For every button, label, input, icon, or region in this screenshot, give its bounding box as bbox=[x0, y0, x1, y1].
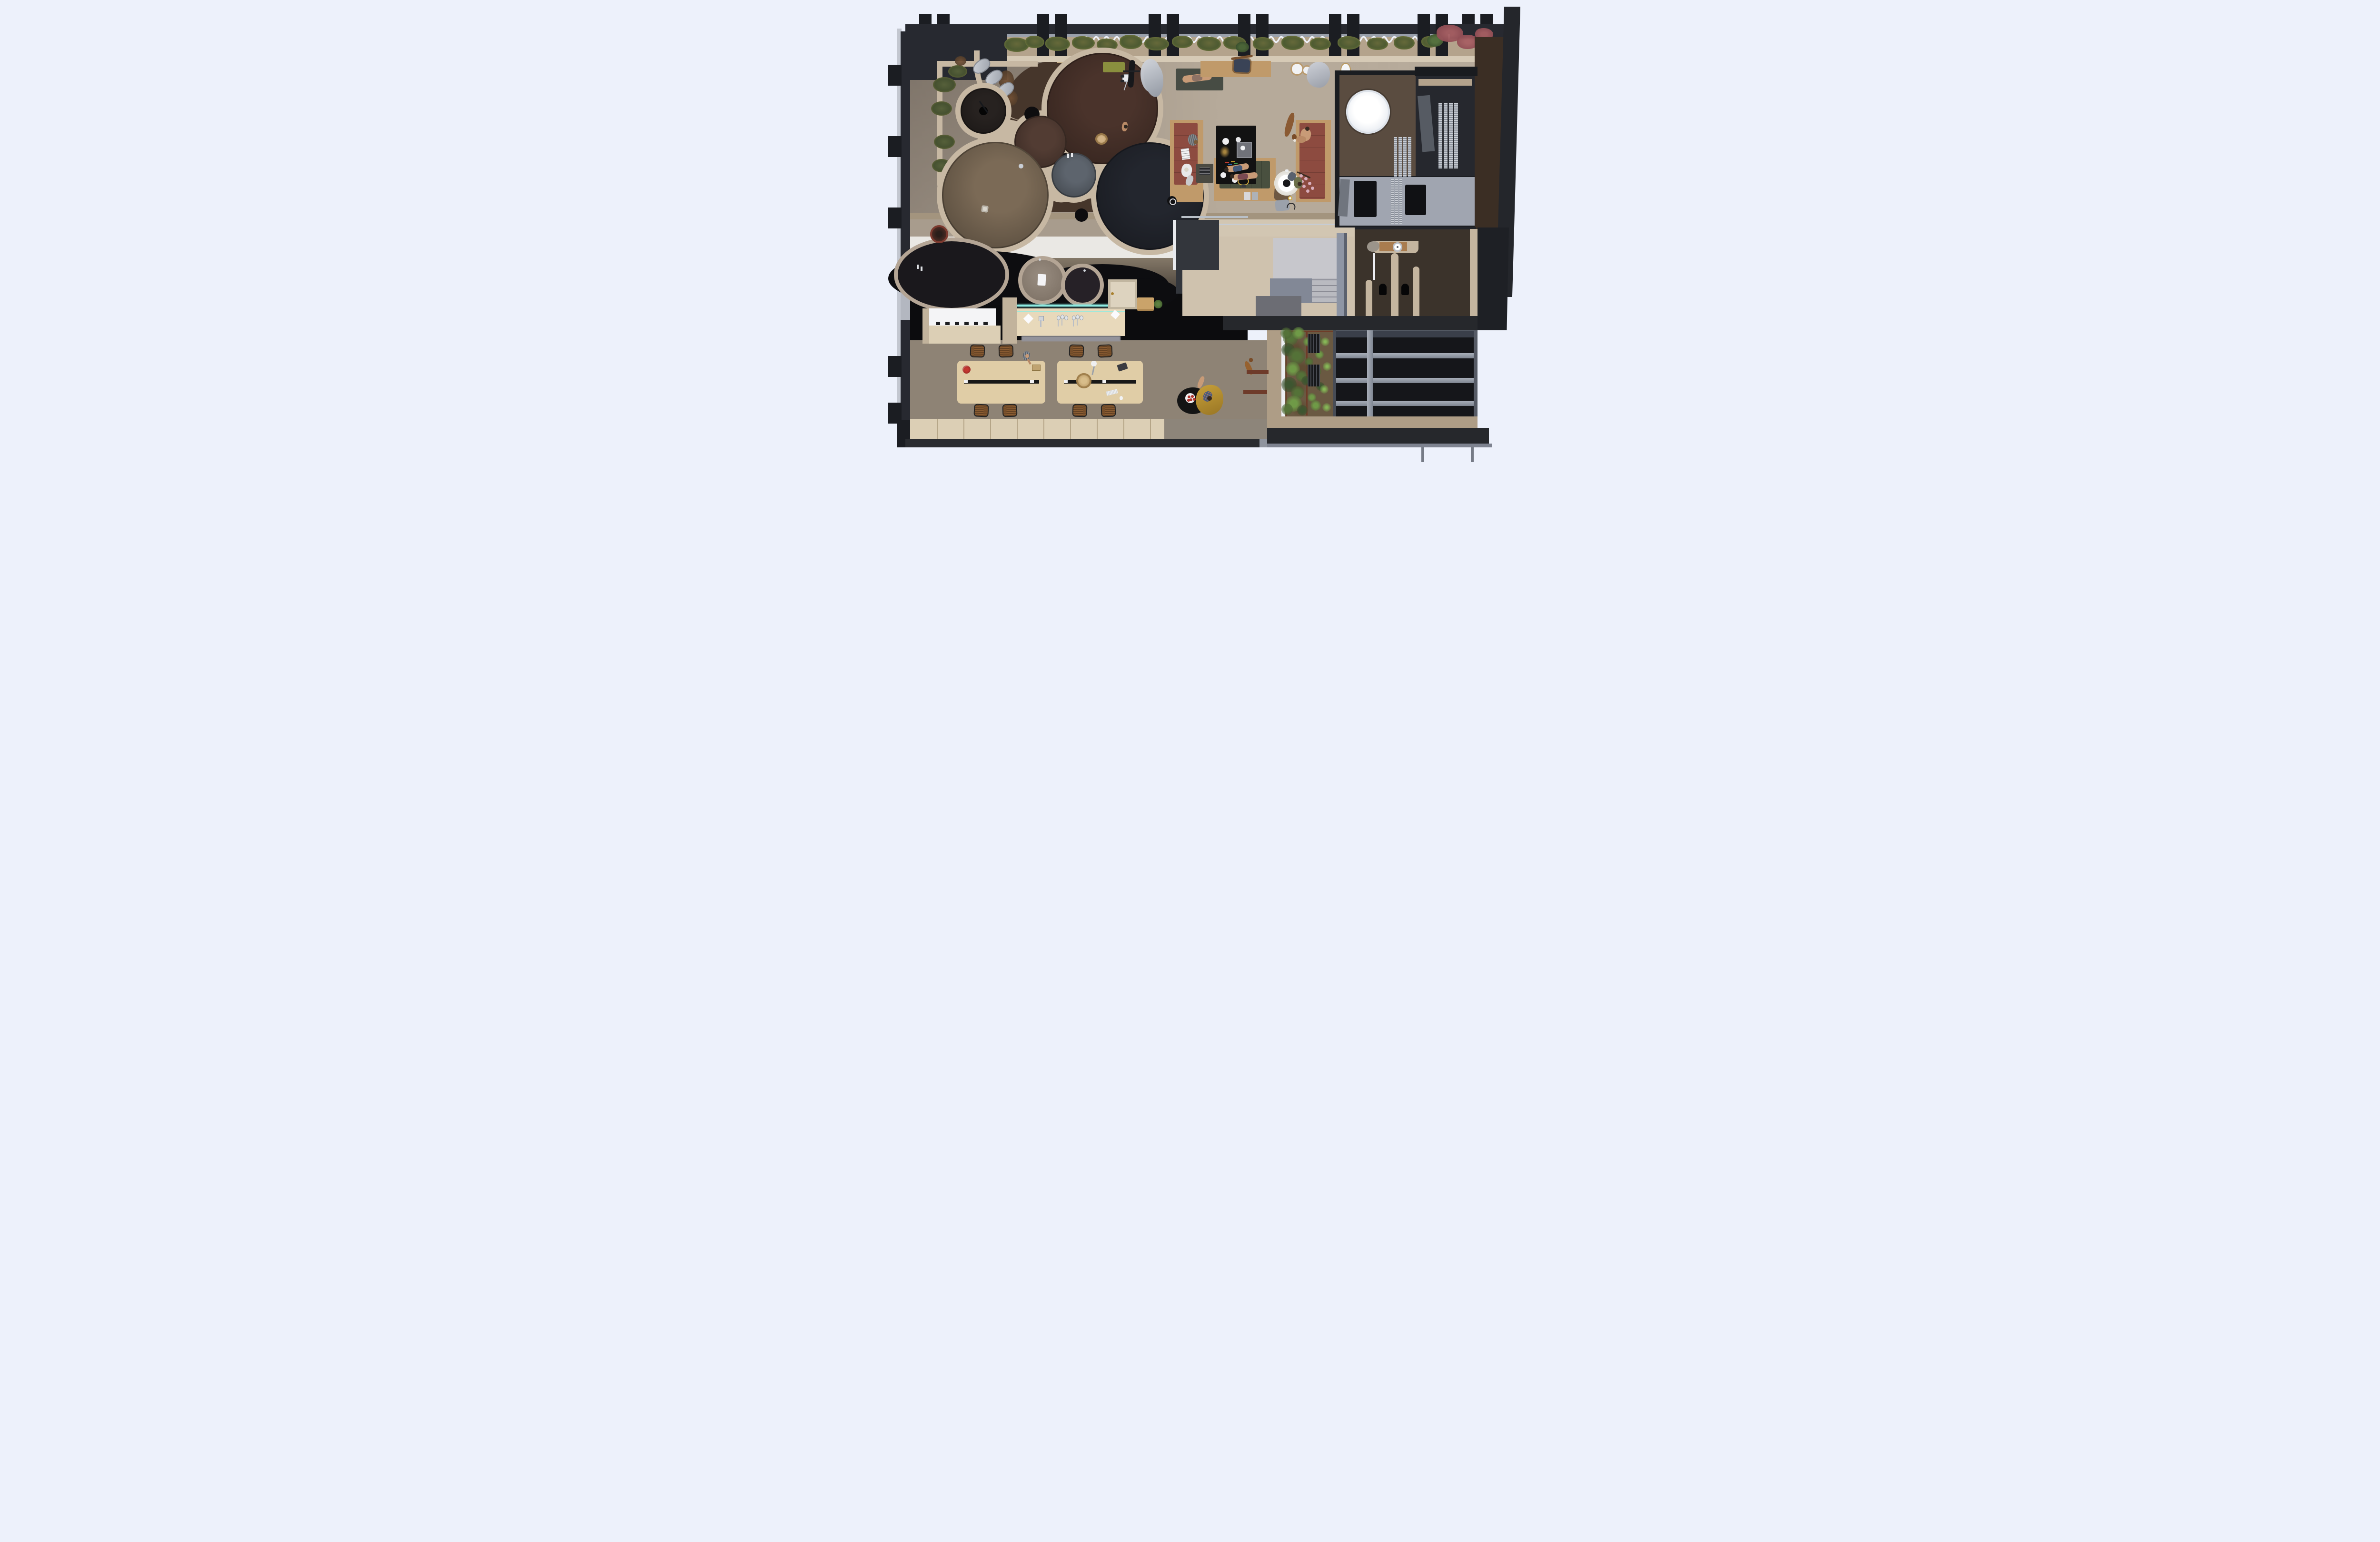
table2-plate-l bbox=[1064, 380, 1068, 383]
cabinet-strip-grey bbox=[1164, 419, 1267, 439]
pool-large-tan-pool bbox=[942, 142, 1049, 248]
cabinet-divider bbox=[937, 419, 938, 440]
door-knob bbox=[1111, 292, 1114, 295]
bench-slat-1 bbox=[1247, 370, 1269, 374]
grass-bush bbox=[1367, 38, 1388, 50]
ivy-clump bbox=[1310, 400, 1321, 411]
fern bbox=[1321, 337, 1329, 346]
cabinet-divider bbox=[1043, 419, 1044, 440]
grass-bush bbox=[1072, 36, 1095, 49]
blossom bbox=[1299, 174, 1303, 178]
cabinet-divider bbox=[1017, 419, 1018, 440]
fern bbox=[1323, 362, 1331, 371]
band-tan-right bbox=[1321, 416, 1478, 429]
grass-bush bbox=[1144, 37, 1169, 50]
olive-yoga-mat bbox=[1103, 62, 1125, 72]
massage-table-1 bbox=[1354, 181, 1377, 217]
toilet-1 bbox=[1379, 284, 1387, 295]
record-disc bbox=[1170, 198, 1176, 205]
counter-slot bbox=[945, 322, 950, 325]
towel-roll-column-2 bbox=[1408, 137, 1411, 177]
top-wall-pier bbox=[1167, 14, 1179, 56]
gold-sprig bbox=[1220, 146, 1230, 158]
grass-bush bbox=[1172, 36, 1193, 48]
white-plate-1 bbox=[1292, 64, 1302, 74]
round-tub bbox=[1346, 90, 1390, 134]
person-coffee-head bbox=[1298, 182, 1302, 186]
restroom-right-wall bbox=[1470, 229, 1478, 316]
stall-pole bbox=[1373, 253, 1375, 280]
dining-chair bbox=[999, 344, 1014, 357]
floor-plan-render bbox=[817, 0, 1563, 462]
cabinet-divider bbox=[990, 419, 991, 440]
barbell bbox=[1123, 70, 1140, 72]
dining-chair bbox=[1002, 404, 1018, 417]
stairs-stringer bbox=[1337, 233, 1344, 317]
fern bbox=[1322, 403, 1331, 412]
left-wall-pier bbox=[888, 65, 902, 86]
dining-chair bbox=[1072, 404, 1088, 417]
grotto-ladder bbox=[917, 265, 919, 269]
dog-garden-head bbox=[1249, 358, 1253, 362]
fern bbox=[1320, 385, 1329, 394]
towel-bar bbox=[1395, 179, 1398, 224]
table1-plate-l bbox=[964, 380, 968, 383]
top-wall-pier bbox=[1037, 14, 1049, 56]
dining-chair bbox=[1069, 344, 1084, 357]
towel-roll-column-2 bbox=[1403, 137, 1407, 177]
mesh-beam-horizontal bbox=[1333, 401, 1478, 406]
cabinet-divider bbox=[1097, 419, 1098, 440]
table1-runner bbox=[964, 380, 1039, 384]
left-wall-pier bbox=[888, 356, 902, 377]
mid-dark-leg bbox=[1176, 270, 1182, 294]
laptop bbox=[1200, 168, 1210, 175]
pool-void-pocket bbox=[1075, 208, 1088, 222]
terrace-bush bbox=[931, 101, 952, 116]
towel-roll-column-2 bbox=[1398, 137, 1402, 177]
beanbag-person-head bbox=[1207, 396, 1212, 401]
cabinet-strip-light bbox=[910, 419, 1164, 440]
person-crossleg-head bbox=[1305, 127, 1309, 131]
blossom bbox=[1306, 189, 1309, 193]
dining-chair bbox=[1101, 404, 1116, 417]
bar-tap bbox=[1080, 316, 1083, 320]
table-plate-1 bbox=[1222, 138, 1229, 145]
counter-slot bbox=[936, 322, 940, 325]
dining-chair bbox=[1097, 344, 1112, 358]
toilet-2 bbox=[1401, 284, 1409, 295]
bench-slat-2 bbox=[1243, 390, 1267, 394]
top-wall-pier bbox=[1462, 14, 1475, 24]
mesh-beam-horizontal bbox=[1333, 353, 1478, 358]
grass-bush bbox=[1281, 36, 1304, 50]
person-tablet-head bbox=[1194, 140, 1198, 144]
grass-bush bbox=[1197, 37, 1221, 51]
stairs-stringer-dark bbox=[1344, 233, 1347, 317]
ivy-clump bbox=[1280, 327, 1292, 339]
counter-slot bbox=[955, 322, 959, 325]
stairs-upper-flight bbox=[1273, 238, 1337, 278]
towel-roll-column-2 bbox=[1394, 137, 1397, 177]
couple-b-head bbox=[1230, 174, 1234, 178]
table2-plate bbox=[1091, 361, 1097, 366]
cabinet-divider bbox=[1070, 419, 1071, 440]
left-wall-pier bbox=[888, 136, 902, 157]
ladder-blue-pool bbox=[1071, 153, 1073, 157]
terrace-bush bbox=[948, 65, 967, 78]
grass-bush bbox=[1045, 37, 1070, 51]
blossom bbox=[1304, 177, 1308, 180]
wicker-basket bbox=[1095, 133, 1108, 145]
bench-bag bbox=[1233, 59, 1250, 73]
planter-grate-1 bbox=[1308, 334, 1320, 353]
crayon bbox=[1231, 161, 1235, 162]
counter-slot bbox=[983, 322, 988, 325]
bottom-band-left bbox=[905, 439, 1267, 447]
table2-plate-r bbox=[1102, 380, 1106, 383]
bottom-grey-line bbox=[1267, 444, 1492, 447]
grotto-white-table bbox=[1037, 274, 1046, 286]
table2-runner bbox=[1064, 380, 1136, 384]
crayon bbox=[1228, 164, 1232, 165]
bar-tap bbox=[1064, 316, 1068, 320]
mid-white-sliver bbox=[1173, 220, 1176, 270]
person-hoodie-head bbox=[1184, 168, 1189, 172]
apple bbox=[1191, 395, 1194, 398]
bar-tap-stem bbox=[1077, 318, 1078, 326]
teal-shelf-2 bbox=[1017, 311, 1125, 312]
service-counter-front bbox=[929, 326, 1001, 344]
bottom-band-right bbox=[1267, 428, 1489, 444]
garden-path-bottom bbox=[1267, 416, 1321, 429]
drain-tan-pool bbox=[981, 205, 989, 213]
stairs-side-steps bbox=[1312, 278, 1337, 303]
towel-stack-2 bbox=[1252, 192, 1258, 200]
left-wall bbox=[901, 31, 910, 441]
crayon bbox=[1234, 163, 1238, 164]
counter-slot bbox=[974, 322, 978, 325]
towel-bar bbox=[1399, 179, 1402, 224]
dry-grass-tuft bbox=[955, 56, 966, 66]
planter-grate-2 bbox=[1308, 365, 1320, 386]
mesh-top-rail bbox=[1333, 330, 1478, 337]
bottom-post-1 bbox=[1421, 447, 1424, 462]
grass-bush bbox=[1394, 36, 1415, 49]
top-right-dark bbox=[1415, 67, 1478, 76]
mid-chrome-bar bbox=[1181, 216, 1248, 218]
towel-roll-column bbox=[1449, 103, 1453, 168]
towel-roll-column bbox=[1438, 103, 1442, 168]
top-wall-pier bbox=[1347, 14, 1359, 56]
coffee-cup bbox=[1288, 196, 1292, 200]
apple bbox=[1188, 395, 1190, 398]
bottom-band-step bbox=[1259, 439, 1267, 447]
blossom bbox=[1311, 187, 1314, 190]
towel-roll-column bbox=[1444, 103, 1448, 168]
blossom bbox=[1308, 182, 1311, 185]
potted-plant bbox=[1154, 300, 1162, 308]
person-standing-pools-head bbox=[1124, 125, 1128, 128]
table1-plate-r bbox=[1030, 380, 1034, 383]
side-desk bbox=[1137, 297, 1154, 311]
mid-dark-block bbox=[1176, 220, 1219, 270]
bar-counter bbox=[1017, 308, 1125, 336]
bar-base-shadow bbox=[1021, 336, 1121, 341]
table1-box bbox=[1032, 365, 1041, 371]
apple bbox=[1187, 399, 1190, 402]
counter-slot bbox=[964, 322, 969, 325]
massage-table-2 bbox=[1405, 185, 1426, 215]
shower-tan-pool bbox=[1019, 164, 1023, 168]
stall-left-wall bbox=[1366, 280, 1372, 316]
crayon bbox=[1225, 162, 1229, 163]
dumbbell-2 bbox=[1121, 80, 1124, 82]
right-lower-wedge bbox=[1475, 227, 1509, 330]
terrace-bush bbox=[933, 77, 956, 92]
ivy-clump bbox=[1297, 405, 1308, 415]
bar-tap-stem bbox=[1058, 319, 1059, 326]
garden-path bbox=[1267, 330, 1281, 416]
grotto-oval bbox=[898, 241, 1005, 308]
magazine bbox=[1180, 148, 1190, 160]
acapulco-chair bbox=[930, 225, 948, 243]
bar-tap-stem bbox=[1061, 318, 1062, 326]
restroom-top-wall bbox=[1355, 227, 1476, 229]
dog-lounge-muzzle bbox=[1293, 139, 1296, 142]
cabinet-divider bbox=[963, 419, 964, 440]
stairs-lower-flight bbox=[1256, 296, 1301, 317]
stall-stem bbox=[1391, 253, 1398, 316]
top-wall-pier bbox=[1480, 14, 1493, 24]
bar-tap-stem bbox=[1073, 319, 1074, 326]
grotto-ladder bbox=[921, 267, 922, 271]
mid-dark-band bbox=[1223, 316, 1478, 330]
couple-b-dress bbox=[1237, 173, 1248, 180]
sauna-bench-top bbox=[1418, 79, 1472, 86]
person-crossleg-legs bbox=[1297, 136, 1306, 143]
service-counter-cap bbox=[922, 308, 929, 344]
towel-stack-1 bbox=[1244, 192, 1250, 200]
pool-cold-blue-pool bbox=[1051, 153, 1096, 198]
grotto-small-pool bbox=[1065, 267, 1100, 303]
ladder-blue-pool bbox=[1067, 154, 1069, 158]
dining-chair bbox=[973, 404, 989, 417]
dining-man-head bbox=[1025, 354, 1029, 358]
grotto-tap-1 bbox=[1039, 258, 1041, 261]
lantern-core bbox=[1283, 179, 1290, 187]
top-wall-pier bbox=[1329, 14, 1341, 56]
table-plate-3 bbox=[1220, 172, 1226, 178]
bar-pillar-left bbox=[1002, 297, 1017, 344]
top-wall-pier bbox=[919, 14, 932, 24]
ivy-clump bbox=[1292, 327, 1305, 339]
top-wall-pier bbox=[937, 14, 950, 24]
bottom-post-2 bbox=[1471, 447, 1474, 462]
tomatoes bbox=[962, 366, 971, 374]
towel-roll-column bbox=[1454, 103, 1458, 168]
left-wall-pier bbox=[888, 208, 902, 228]
couple-a-head bbox=[1224, 168, 1229, 172]
grass-bush bbox=[1253, 37, 1274, 50]
sink-drain bbox=[1397, 246, 1398, 248]
grass-bush bbox=[1338, 36, 1360, 49]
tap-lever bbox=[1040, 320, 1041, 327]
grass-bush bbox=[1310, 38, 1331, 50]
stall-right-wall bbox=[1413, 267, 1419, 316]
grass-bush bbox=[1120, 35, 1142, 49]
tray-jug bbox=[1240, 146, 1245, 150]
towel-bar bbox=[1391, 179, 1394, 224]
person-coffee-shoe bbox=[1285, 169, 1289, 172]
terrace-bush bbox=[934, 135, 955, 149]
mouse-white bbox=[1120, 396, 1123, 400]
mesh-beam-vertical bbox=[1367, 330, 1373, 416]
mesh-left-edge bbox=[1333, 330, 1336, 416]
grotto-tap-2 bbox=[1083, 269, 1086, 272]
camera bbox=[1241, 185, 1246, 188]
grass-bush bbox=[1025, 36, 1044, 48]
blossom bbox=[1302, 185, 1306, 188]
top-wall-pier bbox=[1418, 14, 1430, 56]
dark-green-bush bbox=[1236, 42, 1249, 52]
mesh-beam-horizontal bbox=[1333, 378, 1478, 383]
bread-basket bbox=[1076, 373, 1091, 388]
mesh-right-edge bbox=[1474, 330, 1478, 416]
dining-chair bbox=[970, 344, 985, 357]
dumbbell-1 bbox=[1121, 75, 1124, 78]
cabinet-divider bbox=[1150, 419, 1151, 440]
cabinet-divider bbox=[1123, 419, 1124, 440]
ivy-clump bbox=[1281, 404, 1293, 415]
